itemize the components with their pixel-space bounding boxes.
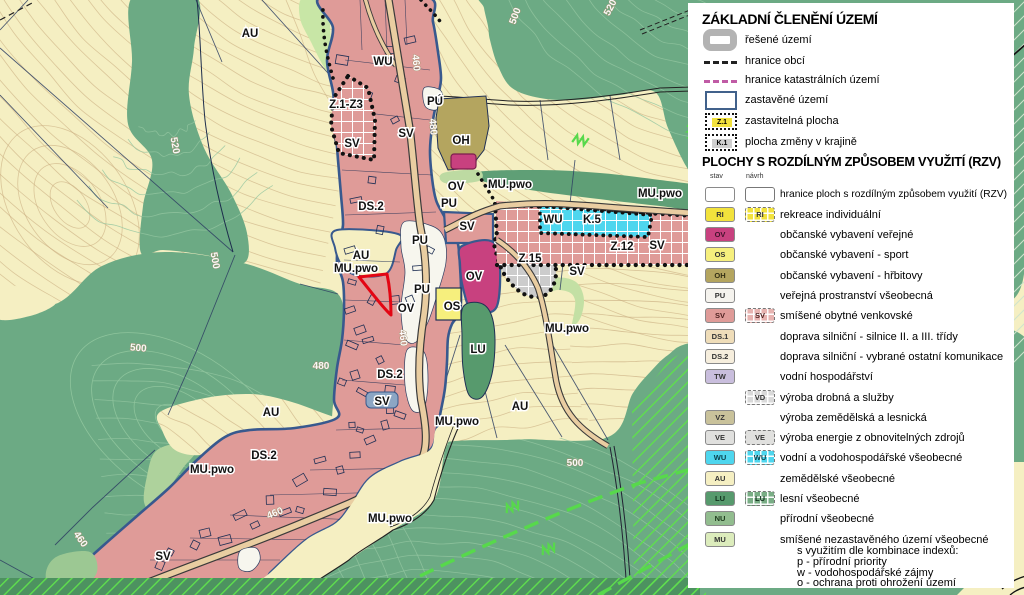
svg-text:SV: SV: [374, 396, 390, 408]
svg-text:MU.pwo: MU.pwo: [190, 464, 234, 476]
svg-text:480: 480: [426, 118, 438, 136]
svg-text:K.5: K.5: [583, 214, 602, 226]
svg-text:MU.pwo: MU.pwo: [545, 323, 589, 335]
svg-text:DS.2: DS.2: [251, 450, 277, 462]
svg-text:500: 500: [129, 342, 147, 354]
svg-text:MU.pwo: MU.pwo: [334, 263, 378, 275]
svg-text:SV: SV: [649, 240, 665, 252]
svg-text:MU.pwo: MU.pwo: [638, 188, 682, 200]
svg-text:AU: AU: [263, 407, 280, 419]
svg-text:SV: SV: [459, 221, 475, 233]
svg-text:PU: PU: [414, 284, 430, 296]
svg-text:SV: SV: [344, 138, 360, 150]
svg-text:WU: WU: [373, 56, 392, 68]
svg-text:480: 480: [313, 361, 330, 372]
svg-text:MU.pwo: MU.pwo: [368, 513, 412, 525]
svg-text:PU: PU: [412, 235, 428, 247]
svg-text:OV: OV: [398, 303, 415, 315]
svg-text:Z.12: Z.12: [610, 241, 633, 253]
svg-text:SV: SV: [569, 266, 585, 278]
svg-text:Z.15: Z.15: [518, 253, 542, 265]
svg-text:WU: WU: [543, 214, 562, 226]
svg-text:SV: SV: [398, 128, 414, 140]
svg-text:460: 460: [409, 54, 421, 72]
svg-text:MU.pwo: MU.pwo: [488, 179, 532, 191]
svg-text:DS.2: DS.2: [377, 369, 403, 381]
svg-text:OS: OS: [444, 301, 461, 313]
svg-text:Z.1-Z3: Z.1-Z3: [329, 99, 363, 111]
svg-text:DS.2: DS.2: [358, 201, 384, 213]
svg-text:LU: LU: [470, 344, 485, 356]
svg-text:OV: OV: [466, 271, 483, 283]
svg-text:OH: OH: [452, 135, 469, 147]
svg-text:OV: OV: [448, 181, 465, 193]
svg-text:AU: AU: [353, 250, 370, 262]
svg-text:MU.pwo: MU.pwo: [435, 416, 479, 428]
svg-text:500: 500: [567, 458, 584, 469]
svg-text:PÚ: PÚ: [427, 95, 443, 108]
svg-text:AU: AU: [512, 401, 529, 413]
svg-text:AU: AU: [242, 28, 259, 40]
svg-text:PU: PU: [441, 198, 457, 210]
svg-text:SV: SV: [155, 551, 171, 563]
svg-text:460: 460: [396, 329, 408, 347]
